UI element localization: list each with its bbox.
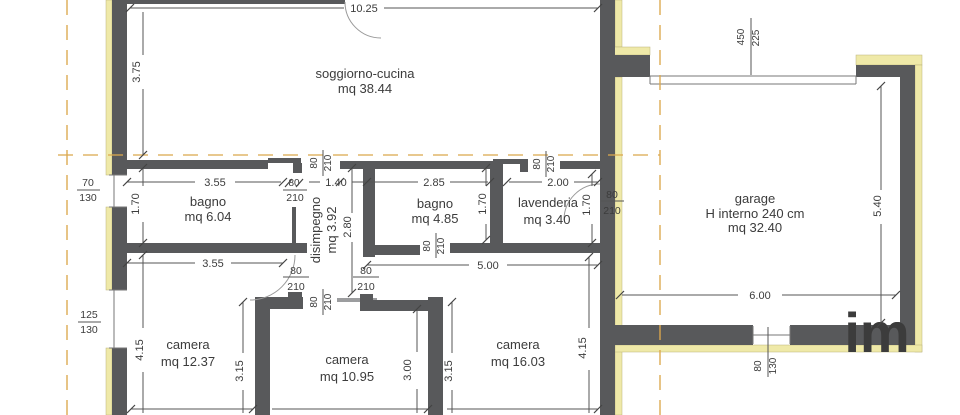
insulation-strip <box>856 55 922 65</box>
door-width-label: 80 <box>309 296 320 308</box>
dim-bagno1-width-bottom: 3.55 <box>202 258 223 270</box>
wall-segment <box>428 297 443 415</box>
pocket-door-leaf <box>268 158 301 163</box>
wall-segment <box>127 243 307 253</box>
floor-plan-canvas: im <box>0 0 960 415</box>
wall-segment <box>450 243 600 253</box>
garage-window-height-label: 130 <box>768 357 779 374</box>
door-height-label: 210 <box>603 205 621 217</box>
room-note-garage: H interno 240 cm <box>706 206 805 221</box>
wall-segment <box>112 348 127 415</box>
window1-height-label: 130 <box>79 192 97 204</box>
dim-camera2-side-right: 3.15 <box>443 360 455 381</box>
insulation-strip <box>615 77 622 415</box>
door-height-label: 210 <box>436 237 447 254</box>
wall-segment <box>127 160 268 169</box>
insulation-strip <box>612 47 650 55</box>
room-label-garage: garage <box>735 191 775 206</box>
dim-soggiorno-width: 10.25 <box>350 3 378 15</box>
dim-lavenderia-width: 2.00 <box>547 177 568 189</box>
dim-garage-width: 6.00 <box>749 290 770 302</box>
door-width-label: 80 <box>606 189 618 201</box>
insulation-strip <box>106 207 112 290</box>
room-label-bagno1: bagno <box>190 194 226 209</box>
wall-segment <box>363 245 420 255</box>
wall-segment <box>112 207 127 290</box>
dim-camera3-height: 4.15 <box>577 337 589 358</box>
wall-segment <box>112 0 345 4</box>
wall-segment <box>615 325 753 345</box>
dim-bagno1-height: 1.70 <box>130 193 142 214</box>
room-area-bagno2: mq 4.85 <box>412 211 459 226</box>
insulation-strip <box>615 0 622 47</box>
room-area-camera3: mq 16.03 <box>491 354 545 369</box>
floor-plan: im <box>0 0 960 415</box>
watermark: im <box>844 301 909 364</box>
door-jamb <box>288 292 302 299</box>
wall-segment <box>112 0 127 175</box>
door-jamb <box>293 163 302 173</box>
window2-width-label: 125 <box>80 309 98 321</box>
dim-camera1-height: 4.15 <box>134 339 146 360</box>
door-width-label: 80 <box>422 240 433 252</box>
room-area-disimpegno: mq 3.92 <box>324 207 339 254</box>
dim-garage-height: 5.40 <box>872 195 884 216</box>
room-label-disimpegno: disimpegno <box>308 197 323 264</box>
room-label-camera2: camera <box>325 352 369 367</box>
insulation-strip <box>106 348 112 415</box>
door-height-label: 210 <box>323 293 334 310</box>
door-width-label: 80 <box>309 157 320 169</box>
room-area-soggiorno: mq 38.44 <box>338 81 392 96</box>
dim-disimpegno-width: 1.40 <box>325 177 346 189</box>
dim-disimpegno-height: 2.80 <box>342 216 354 237</box>
room-label-camera3: camera <box>496 337 540 352</box>
wall-segment <box>490 162 503 250</box>
door-width-label: 80 <box>532 158 543 170</box>
door-jamb <box>360 294 373 301</box>
door-height-label: 210 <box>287 281 305 293</box>
room-area-camera1: mq 12.37 <box>161 354 215 369</box>
dim-camera2-side-left: 3.15 <box>234 360 246 381</box>
garage-door-height-label: 225 <box>751 29 762 46</box>
dim-bagno2-width: 2.85 <box>423 177 444 189</box>
garage-door-width-label: 450 <box>736 28 747 45</box>
door-height-label: 210 <box>546 155 557 172</box>
door-height-label: 210 <box>286 192 304 204</box>
dim-hall-width: 5.00 <box>477 260 498 272</box>
room-area-garage: mq 32.40 <box>728 220 782 235</box>
dim-bagno1-width: 3.55 <box>204 177 225 189</box>
room-area-lavenderia: mq 3.40 <box>524 212 571 227</box>
window2-height-label: 130 <box>80 324 98 336</box>
door-width-label: 80 <box>290 265 302 277</box>
wall-segment <box>255 297 270 415</box>
room-label-bagno2: bagno <box>417 196 453 211</box>
door-height-label: 210 <box>357 281 375 293</box>
door-width-label: 80 <box>288 178 300 189</box>
dim-bagno2-height: 1.70 <box>477 193 489 214</box>
window1-width-label: 70 <box>82 177 94 189</box>
insulation-strip <box>915 65 922 352</box>
door-height-label: 210 <box>323 154 334 171</box>
dim-soggiorno-height: 3.75 <box>131 61 143 82</box>
door-width-label: 80 <box>360 265 372 277</box>
wall-segment <box>612 55 650 77</box>
room-label-lavenderia: lavenderia <box>518 195 579 210</box>
dim-camera2-width: 3.00 <box>402 359 414 380</box>
wall-segment <box>340 161 493 169</box>
room-label-soggiorno: soggiorno-cucina <box>315 66 415 81</box>
room-area-bagno1: mq 6.04 <box>185 209 232 224</box>
room-label-camera1: camera <box>166 337 210 352</box>
wall-segment <box>560 161 607 169</box>
door-jamb <box>520 164 528 172</box>
wall-segment <box>363 162 375 257</box>
dim-lavenderia-height: 1.70 <box>581 194 593 215</box>
room-area-camera2: mq 10.95 <box>320 369 374 384</box>
insulation-strip <box>106 0 112 175</box>
garage-window-width-label: 80 <box>753 360 764 372</box>
